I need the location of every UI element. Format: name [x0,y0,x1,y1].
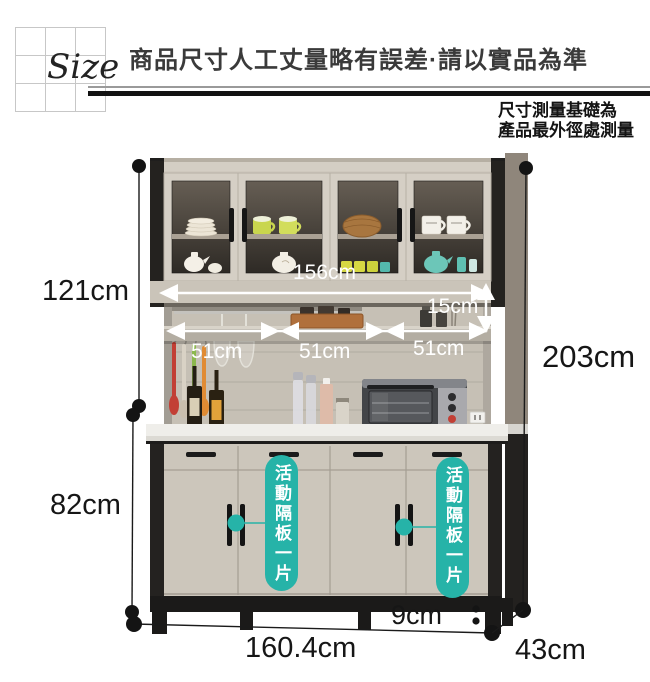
power-outlet [470,412,485,423]
measurement-note: 尺寸測量基礎為 產品最外徑處測量 [498,101,634,141]
dim-label-hutch-height: 121cm [42,277,129,306]
size-grid-cell [46,84,76,112]
leg-height-dot [472,617,479,624]
cabinet-foot [152,612,167,634]
size-label: Size [47,47,119,87]
door-handle [397,208,402,242]
size-grid-cell [16,56,46,84]
product-size-diagram: Size 商品尺寸人工丈量略有誤差·請以實品為準 尺寸測量基礎為 產品最外徑處測… [0,0,650,682]
dim-label-inner-width: 156cm [293,262,356,283]
door-handle [229,208,234,242]
cabinet-foot [358,612,371,630]
size-grid-cell [16,28,46,56]
measurement-note-line1: 尺寸測量基礎為 [498,101,634,121]
dim-label-base-height: 82cm [50,491,121,520]
callout-movable-shelf-left: 活動隔板一片 [265,455,298,591]
disclaimer-title: 商品尺寸人工丈量略有誤差·請以實品為準 [129,40,588,75]
open-shelf-area [164,306,491,429]
callout-text: 活動隔板一片 [440,457,465,598]
dim-label-depth: 43cm [515,636,586,665]
dim-label-section-3: 51cm [413,338,464,359]
door-handle [242,208,247,242]
glass-door-1 [164,173,238,281]
hutch-top-edge [150,158,505,162]
base-height-line [132,415,133,612]
base-strip-right [488,444,502,597]
dim-label-total-height: 203cm [542,341,635,372]
header-divider-black [88,91,650,96]
kick-base [150,596,502,612]
drawer-handle [186,452,216,457]
hutch-strip-right [491,161,505,307]
callout-movable-shelf-right: 活動隔板一片 [436,457,469,598]
callout-text: 活動隔板一片 [269,455,294,591]
countertop [146,424,508,444]
dim-label-section-1: 51cm [191,341,242,362]
dim-label-shelf-gap: 15cm [427,296,478,317]
dim-label-total-width: 160.4cm [245,634,356,663]
measurement-note-line2: 產品最外徑處測量 [498,121,634,141]
base-strip-left [150,444,164,597]
dim-label-leg-height: 9cm [391,602,442,629]
glass-door-4 [406,173,491,281]
size-grid-cell [76,84,106,112]
callout-dot-right [396,519,413,536]
dim-label-section-2: 51cm [299,341,350,362]
leg-height-dot [472,605,479,612]
drawer-handle [353,452,383,457]
rattan-basket [343,215,381,237]
door-handle [410,208,415,242]
plate-stack [185,218,217,236]
callout-dot-left [228,515,245,532]
header-divider-gray [88,86,650,88]
toaster-oven [361,379,469,429]
size-grid-cell [16,84,46,112]
cabinet-illustration [95,140,560,660]
